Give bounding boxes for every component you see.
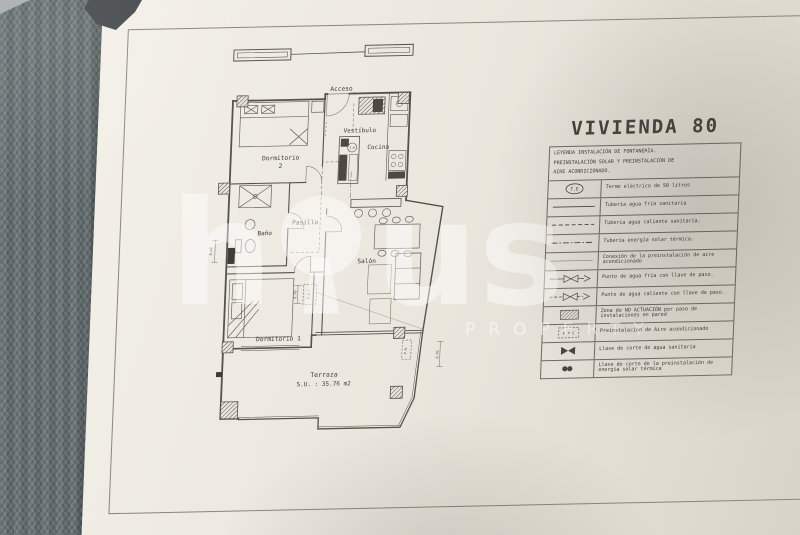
bed-dormitorio-1 [227,279,293,338]
paper-sheet: VIVIENDA 80 [79,0,800,535]
svg-text:T.E: T.E [570,187,579,193]
cold-water-valve-icon [545,270,599,288]
photo-of-floor-plan: VIVIENDA 80 [0,0,800,535]
legend-row: Llave de corte de la preinstalación de e… [541,357,732,378]
hot-water-pipe-icon [547,216,601,234]
floor-plan: T.E [200,39,476,434]
label-cocina: Cocina [367,144,389,151]
no-action-zone-icon [543,306,597,324]
page-title: VIVIENDA 80 [540,114,751,140]
ac-preinstall-icon: P.A.C [542,324,596,342]
water-heater-icon: T.E [548,180,602,198]
label-vestibulo: Vestíbulo [343,127,376,135]
label-salon: Salón [357,257,376,265]
solar-shutoff-icon [541,360,595,378]
water-heater-symbol: T.E [347,143,356,152]
svg-text:0.70: 0.70 [293,290,297,298]
pergola-outlines [234,44,414,61]
ac-connection-icon [545,252,599,270]
solar-pipe-icon [546,234,600,252]
background-object-corner [0,0,30,14]
svg-text:0.70: 0.70 [435,350,439,358]
svg-text:P.A.C: P.A.C [563,331,576,336]
legend-header: LEYENDA INSTALACIÓN DE FONTANERÍA. PREIN… [549,143,741,180]
svg-text:T.E: T.E [349,146,355,150]
kitchen-counters [336,92,408,217]
legend-table: LEYENDA INSTALACIÓN DE FONTANERÍA. PREIN… [540,142,742,378]
dimension-right-070: 0.70 P.A. [401,339,443,367]
label-dormitorio1: Dormitorio 1 [256,335,301,343]
svg-text:P.A.: P.A. [403,346,407,354]
label-terraza: Terraza [310,371,338,380]
label-acceso: Acceso [330,86,353,93]
bathroom-fixtures [227,185,271,264]
label-pasillo: Pasillo [292,219,319,227]
cold-water-pipe-icon [547,198,601,216]
hot-water-valve-icon [544,288,598,306]
label-dormitorio2: Dormitorio [262,155,300,163]
label-terraza-area: S.U. : 35.76 m2 [296,380,351,388]
room-labels: Acceso Vestíbulo Cocina Dormitorio 2 Bañ… [251,85,392,390]
shutoff-valve-icon [542,342,596,360]
svg-text:P.A.C: P.A.C [307,289,311,299]
bed-dormitorio-2 [239,101,324,147]
dimension-left-040: 0.40 [209,240,219,262]
svg-text:0.40: 0.40 [209,247,213,255]
label-bano: Baño [257,230,272,237]
label-dormitorio2-num: 2 [278,163,282,170]
living-room-furniture [314,216,427,331]
